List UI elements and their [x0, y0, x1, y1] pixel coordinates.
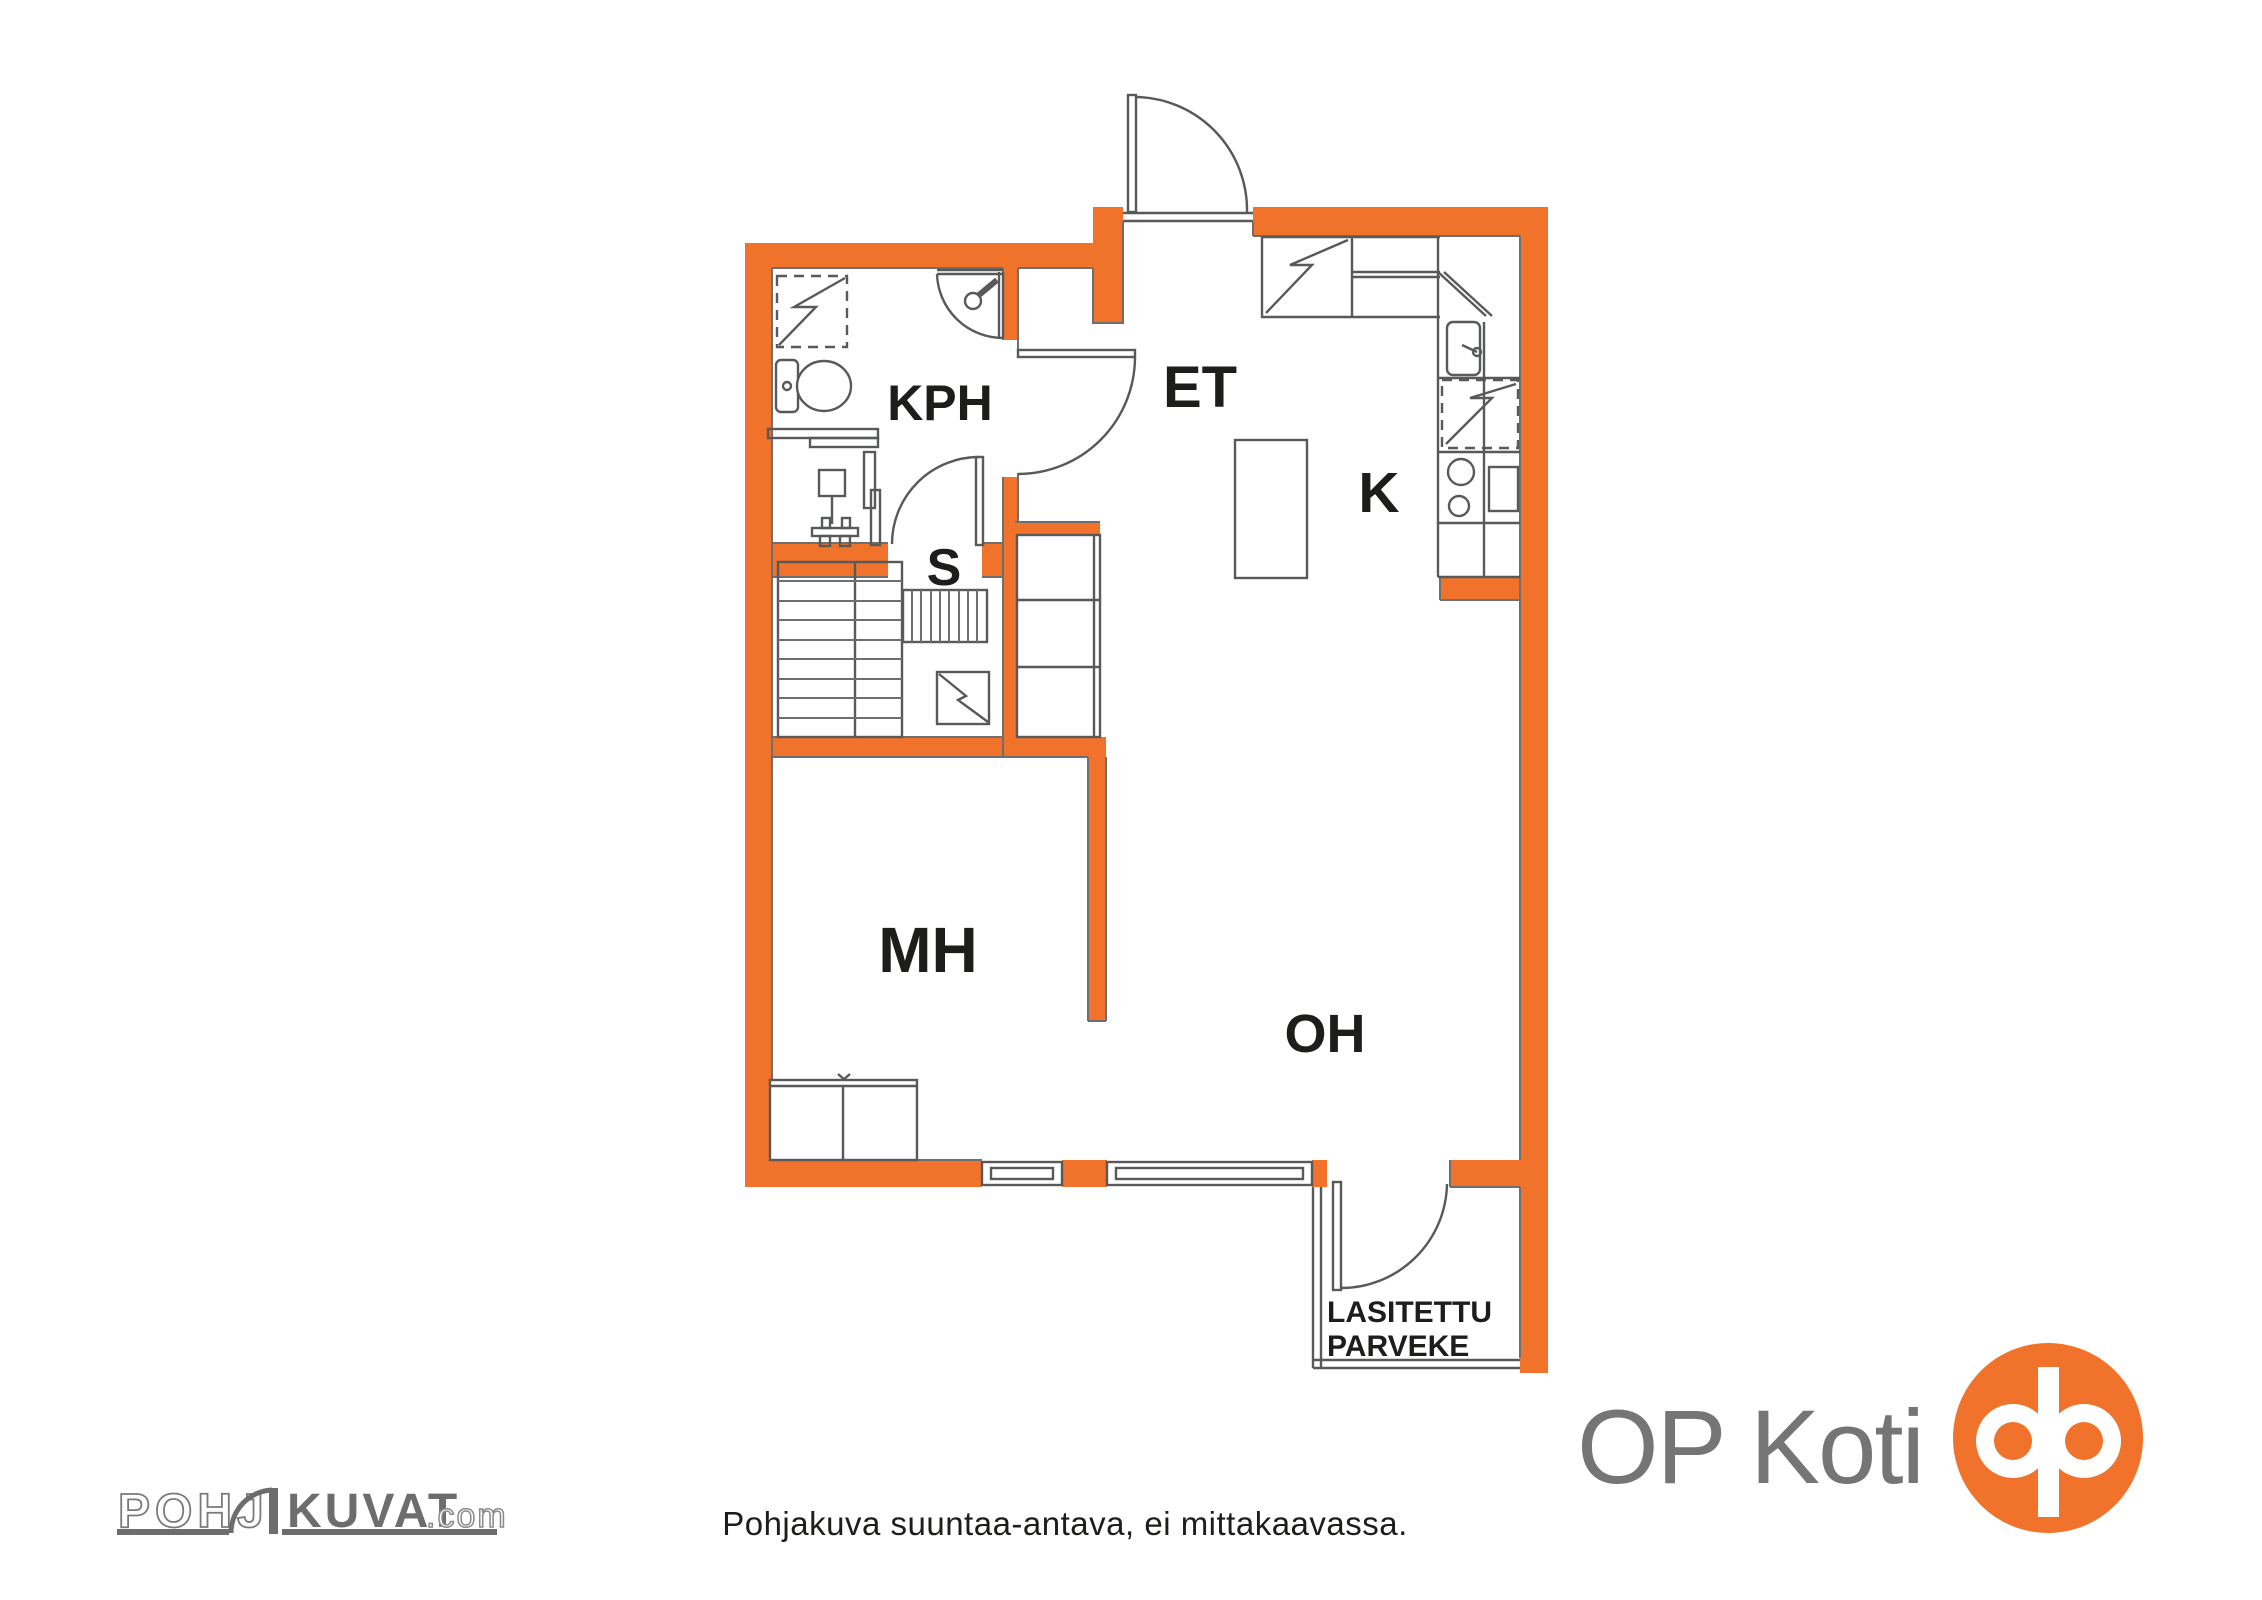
closets: [770, 535, 1100, 1160]
kitchen-sink-icon: [1447, 322, 1481, 375]
floor-plan: KPH ET K S MH OH LASITETTU PARVEKE POHJ …: [0, 0, 2262, 1600]
oh-window: [1107, 1162, 1312, 1185]
wall-sauna-bottom: [745, 737, 1106, 757]
et-closet: [1017, 535, 1100, 737]
room-label-s: S: [927, 539, 962, 597]
wall-left: [745, 243, 772, 1187]
disclaimer-text: Pohjakuva suuntaa-antava, ei mittakaavas…: [722, 1505, 1408, 1542]
room-label-et: ET: [1163, 355, 1237, 420]
corner-shower-icon: [937, 270, 1003, 338]
fridge-icon: [1266, 240, 1348, 313]
entrance-threshold: [1123, 213, 1253, 221]
wall-kitchen-stub: [1440, 578, 1520, 600]
wall-sauna-top-right: [982, 543, 1018, 577]
wall-sauna-top-left: [745, 543, 888, 577]
balcony-door: [1333, 1182, 1447, 1290]
room-label-oh: OH: [1285, 1004, 1366, 1064]
wall-kph-right-upper: [1003, 268, 1018, 340]
wall-bottom-mh: [745, 1160, 982, 1187]
sauna-door: [892, 457, 983, 545]
mh-closet: [770, 1074, 917, 1160]
op-koti-wordmark: OP Koti: [1577, 1389, 1923, 1506]
wall-closet-top: [1015, 522, 1100, 535]
room-boundaries: [772, 222, 1520, 1358]
room-labels: KPH ET K S MH OH LASITETTU PARVEKE: [878, 355, 1492, 1363]
laundry-faucet-icon: [812, 518, 858, 546]
sauna-heater-icon: [937, 672, 989, 724]
sauna-step-icon: [903, 590, 987, 642]
wall-kph-right-lower: [1003, 477, 1018, 757]
op-koti-brand: OP Koti: [1577, 1343, 2143, 1533]
walls: [745, 207, 1548, 1373]
shower-reservation-icon: [777, 276, 847, 347]
wall-mh-oh-divider: [1088, 757, 1106, 1021]
floorplan-page: KPH ET K S MH OH LASITETTU PARVEKE POHJ …: [0, 0, 2262, 1600]
pohjakuvat-logo: POHJ KUVAT .com: [117, 1485, 508, 1538]
mh-window: [982, 1162, 1062, 1185]
wall-balcony-right: [1450, 1160, 1520, 1187]
entrance-door: [1128, 95, 1247, 212]
wall-entry-stub-down: [1093, 268, 1123, 323]
kitchen-island: [1235, 440, 1307, 578]
kitchen-fixtures: [1235, 237, 1520, 578]
wall-top-kph: [745, 243, 1123, 268]
balcony-label-line1: LASITETTU: [1327, 1296, 1492, 1329]
wall-top-right: [1253, 207, 1548, 236]
dishwasher-icon: [1442, 380, 1518, 448]
wall-window-pier2: [1312, 1160, 1327, 1187]
logo-baseline-left: [117, 1529, 229, 1535]
logo-baseline-right: [282, 1529, 497, 1535]
room-label-mh: MH: [878, 914, 978, 986]
sauna-benches-icon: [778, 562, 902, 737]
wall-window-pier1: [1062, 1160, 1107, 1187]
balcony-label-line2: PARVEKE: [1327, 1330, 1469, 1363]
room-label-kph: KPH: [887, 375, 993, 431]
op-logo-icon: [1953, 1343, 2143, 1533]
room-label-k: K: [1358, 461, 1399, 525]
toilet-icon: [776, 360, 851, 412]
kph-door: [1018, 350, 1135, 474]
wall-right: [1520, 236, 1548, 1373]
wall-entry-stub-up: [1093, 207, 1123, 247]
